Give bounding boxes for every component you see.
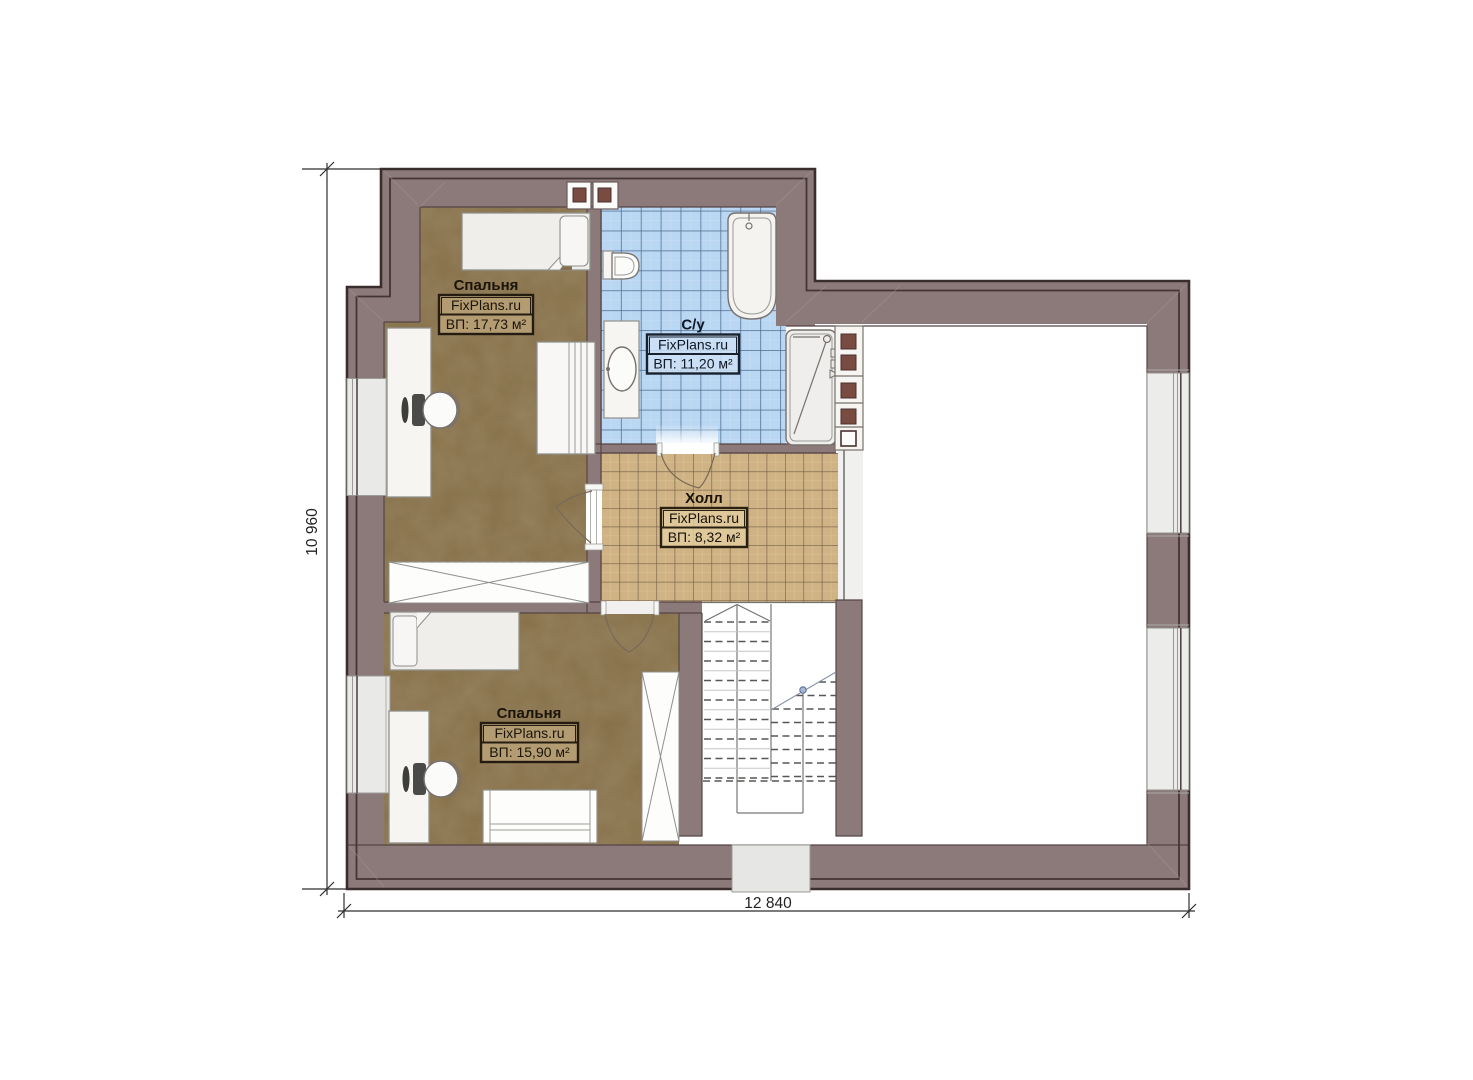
svg-text:ВП: 11,20 м²: ВП: 11,20 м² <box>653 356 733 372</box>
svg-text:FixPlans.ru: FixPlans.ru <box>451 297 521 313</box>
svg-text:Спальня: Спальня <box>497 705 562 722</box>
svg-text:FixPlans.ru: FixPlans.ru <box>494 725 564 741</box>
svg-text:ВП: 17,73 м²: ВП: 17,73 м² <box>446 316 527 332</box>
svg-text:ВП: 8,32 м²: ВП: 8,32 м² <box>668 529 741 545</box>
svg-text:12 840: 12 840 <box>744 895 792 912</box>
svg-text:Спальня: Спальня <box>454 277 519 294</box>
svg-text:10 960: 10 960 <box>304 508 321 556</box>
svg-text:С/у: С/у <box>681 317 705 334</box>
svg-text:FixPlans.ru: FixPlans.ru <box>669 510 739 526</box>
svg-text:FixPlans.ru: FixPlans.ru <box>658 337 728 353</box>
svg-text:Холл: Холл <box>685 490 723 507</box>
svg-text:ВП: 15,90 м²: ВП: 15,90 м² <box>489 744 570 760</box>
